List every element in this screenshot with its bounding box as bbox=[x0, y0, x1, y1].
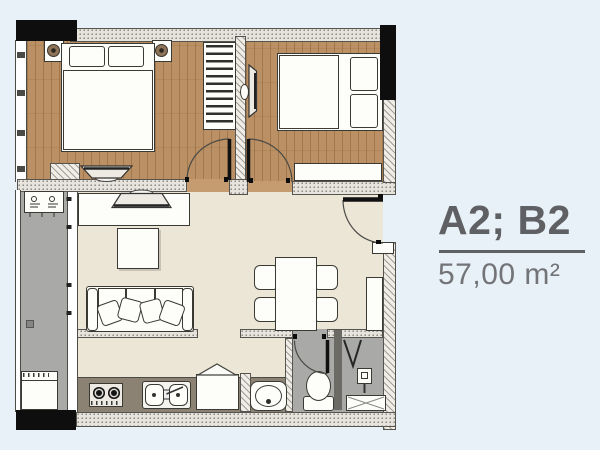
bed-pillow bbox=[350, 94, 378, 128]
shower-tray bbox=[346, 395, 386, 411]
ac-unit bbox=[24, 191, 64, 213]
unit-divider-line bbox=[439, 250, 585, 253]
bedroom2-desk bbox=[294, 163, 382, 181]
right-wall-upper bbox=[383, 98, 396, 183]
bedroom-divider-wall bbox=[235, 36, 246, 182]
tv-stand-oval bbox=[240, 84, 249, 100]
toilet-bowl bbox=[306, 371, 331, 401]
dining-chair bbox=[316, 297, 338, 322]
basin-drain bbox=[266, 399, 271, 404]
bedroom1-door-threshold bbox=[186, 179, 231, 193]
window-mullion bbox=[17, 166, 25, 172]
stove-knobs bbox=[91, 401, 121, 405]
top-wall bbox=[70, 28, 383, 42]
dining-chair bbox=[254, 265, 276, 290]
fridge bbox=[196, 374, 239, 410]
sink-drain bbox=[176, 393, 180, 397]
unit-code-label: A2; B2 bbox=[438, 200, 598, 241]
shower-partition-wall bbox=[334, 330, 342, 410]
floor-drain bbox=[26, 320, 34, 328]
bedroom2-south-wall bbox=[292, 181, 396, 195]
door-jamb-wall bbox=[229, 179, 248, 195]
column-bottom-left bbox=[16, 410, 76, 430]
sink-drain bbox=[152, 393, 156, 397]
entrance-threshold bbox=[372, 242, 394, 254]
window-mullion bbox=[17, 52, 25, 58]
unit-label-panel: A2; B2 57,00 m² bbox=[438, 200, 598, 290]
bottom-wall bbox=[76, 412, 396, 427]
tv-console bbox=[78, 193, 190, 226]
balcony-sliding-door bbox=[67, 192, 78, 412]
stove-burner bbox=[108, 387, 120, 399]
bed-pillow bbox=[108, 46, 144, 67]
bed-mattress bbox=[279, 55, 339, 129]
stove-burner bbox=[93, 387, 105, 399]
table-lamp bbox=[155, 44, 168, 57]
unit-area-label: 57,00 m² bbox=[438, 260, 598, 290]
column-top-right bbox=[380, 25, 396, 100]
bed-pillow bbox=[350, 57, 378, 91]
window-mullion bbox=[17, 130, 25, 136]
washer-controls bbox=[23, 373, 49, 377]
shoe-cabinet bbox=[366, 277, 383, 331]
dining-table bbox=[275, 257, 317, 331]
bed-blanket bbox=[63, 70, 153, 150]
coffee-table bbox=[117, 228, 159, 269]
bed-pillow bbox=[69, 46, 105, 67]
floor-plan-canvas: A2; B2 57,00 m² bbox=[0, 0, 600, 450]
column-top-left bbox=[16, 20, 77, 41]
window-mullion bbox=[17, 90, 25, 96]
dining-chair bbox=[254, 297, 276, 322]
wardrobe-rail bbox=[206, 45, 233, 127]
bedroom1-window bbox=[15, 40, 27, 182]
dining-chair bbox=[316, 265, 338, 290]
table-lamp bbox=[47, 44, 60, 57]
washer-panel-line bbox=[21, 380, 58, 381]
shower-head-plate bbox=[361, 372, 368, 379]
